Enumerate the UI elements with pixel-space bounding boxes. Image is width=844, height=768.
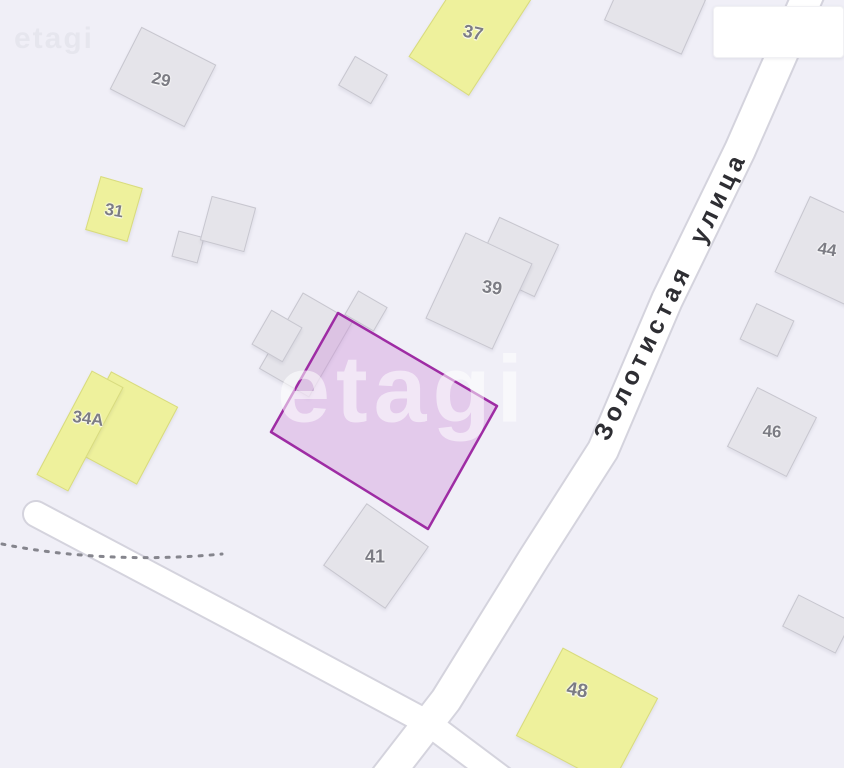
building-44-label: 44: [816, 239, 838, 262]
building-41-label: 41: [365, 547, 385, 568]
building-37-label: 37: [461, 21, 485, 46]
building-small-2: [200, 196, 256, 252]
building-39-label: 39: [481, 276, 504, 300]
building-small-top: [338, 56, 388, 104]
building-small-4: [740, 303, 795, 357]
building-37[interactable]: [408, 0, 531, 96]
building-top-right: [604, 0, 706, 55]
map-canvas[interactable]: 29 37 31 39 34A 41 44 46 48 Золотистая у…: [0, 0, 844, 768]
building-34a-label: 34A: [71, 407, 105, 431]
building-small-5: [782, 594, 844, 653]
info-overlay-box: [713, 6, 844, 58]
building-small-1: [171, 230, 204, 263]
buildings-layer: [0, 0, 844, 768]
building-29-label: 29: [150, 68, 173, 91]
building-48[interactable]: [516, 648, 658, 768]
building-31-label: 31: [103, 200, 125, 223]
building-48-label: 48: [565, 678, 590, 703]
building-46-label: 46: [762, 421, 782, 442]
